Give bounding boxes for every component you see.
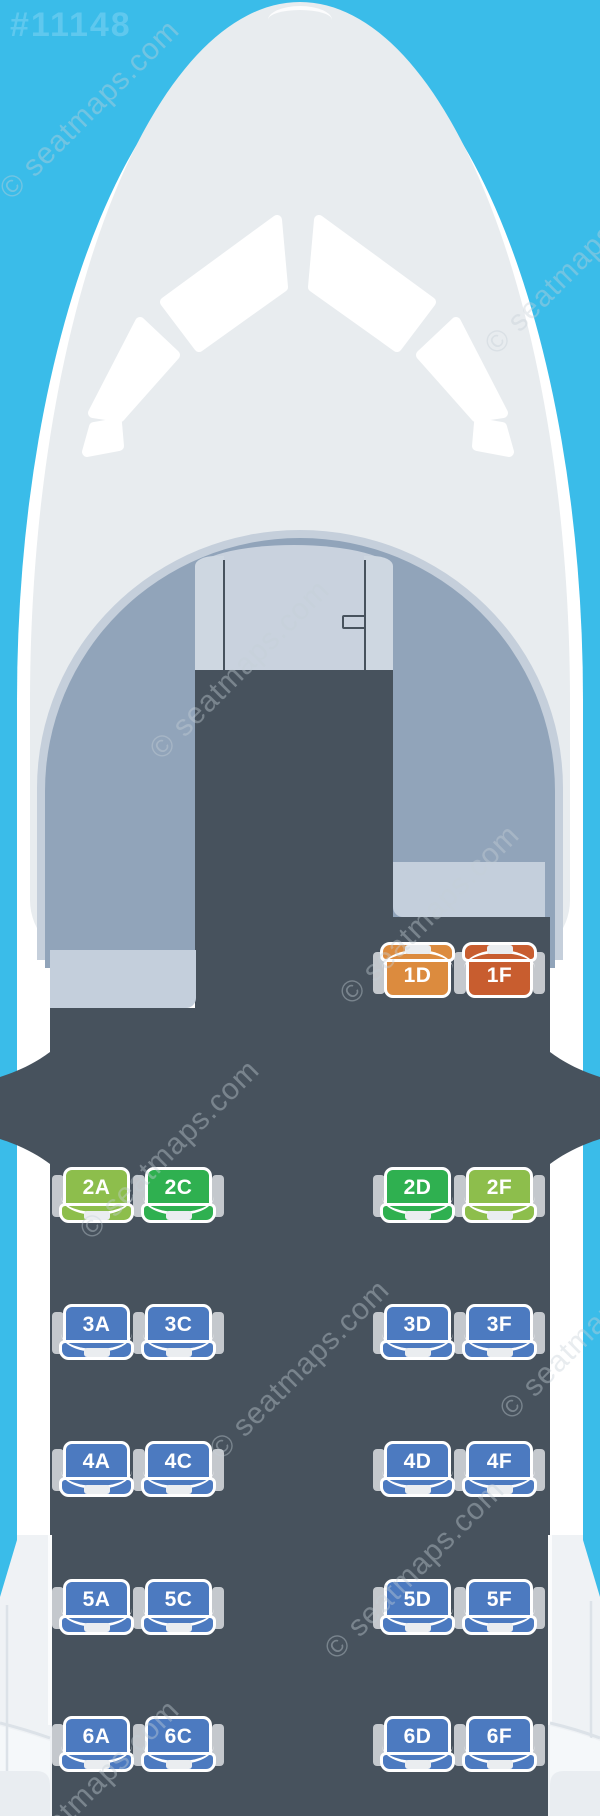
seat-headrest-tab	[405, 1348, 431, 1357]
seat-2D[interactable]: 2D	[384, 1167, 451, 1221]
seat-headrest-tab	[487, 945, 513, 954]
wing-root-left	[0, 1535, 60, 1816]
seat-headrest-tab	[84, 1760, 110, 1769]
nose-highlight	[268, 6, 332, 34]
seat-label: 4C	[148, 1450, 209, 1474]
seat-label: 5D	[387, 1588, 448, 1612]
seat-label: 3F	[469, 1313, 530, 1337]
seat-5A[interactable]: 5A	[63, 1579, 130, 1633]
seat-label: 5C	[148, 1588, 209, 1612]
seat-headrest-tab	[405, 945, 431, 954]
seat-label: 3C	[148, 1313, 209, 1337]
wing-root-right	[510, 1535, 600, 1816]
seat-headrest-tab	[487, 1211, 513, 1220]
seat-label: 2D	[387, 1176, 448, 1200]
seat-6D[interactable]: 6D	[384, 1716, 451, 1770]
seat-2F[interactable]: 2F	[466, 1167, 533, 1221]
seat-headrest-tab	[405, 1760, 431, 1769]
seat-label: 3A	[66, 1313, 127, 1337]
seat-headrest-tab	[487, 1623, 513, 1632]
seat-5F[interactable]: 5F	[466, 1579, 533, 1633]
seat-label: 1F	[469, 964, 530, 988]
seat-label: 2C	[148, 1176, 209, 1200]
seat-headrest-tab	[84, 1211, 110, 1220]
seat-headrest-tab	[84, 1623, 110, 1632]
cockpit-panel-left-column	[195, 556, 224, 670]
seat-headrest-tab	[487, 1348, 513, 1357]
seat-label: 6D	[387, 1725, 448, 1749]
front-aisle-floor	[195, 670, 393, 1015]
seat-headrest-tab	[166, 1760, 192, 1769]
seat-3F[interactable]: 3F	[466, 1304, 533, 1358]
seat-headrest-tab	[166, 1485, 192, 1494]
seat-headrest-tab	[487, 1485, 513, 1494]
seat-label: 6C	[148, 1725, 209, 1749]
cockpit-door-handle-icon	[342, 615, 366, 629]
seat-headrest-tab	[166, 1348, 192, 1357]
seat-headrest-tab	[487, 1760, 513, 1769]
seat-map-canvas: #11148 1D1F2A2C2D2F3A3C3D3F4A4C4D4F5A5C5…	[0, 0, 600, 1816]
seat-headrest-tab	[166, 1623, 192, 1632]
seat-6C[interactable]: 6C	[145, 1716, 212, 1770]
cockpit-panel-right-column	[364, 556, 393, 670]
cockpit-door-line-left	[223, 560, 225, 670]
seat-3D[interactable]: 3D	[384, 1304, 451, 1358]
seat-headrest-tab	[405, 1211, 431, 1220]
cockpit-windows-icon	[0, 170, 600, 470]
seat-5D[interactable]: 5D	[384, 1579, 451, 1633]
seat-headrest-tab	[405, 1485, 431, 1494]
seat-3C[interactable]: 3C	[145, 1304, 212, 1358]
seat-4C[interactable]: 4C	[145, 1441, 212, 1495]
seat-4A[interactable]: 4A	[63, 1441, 130, 1495]
seat-2A[interactable]: 2A	[63, 1167, 130, 1221]
seat-headrest-tab	[166, 1211, 192, 1220]
seat-6A[interactable]: 6A	[63, 1716, 130, 1770]
seat-4F[interactable]: 4F	[466, 1441, 533, 1495]
seat-2C[interactable]: 2C	[145, 1167, 212, 1221]
seat-label: 4D	[387, 1450, 448, 1474]
seat-6F[interactable]: 6F	[466, 1716, 533, 1770]
seat-label: 2F	[469, 1176, 530, 1200]
seat-label: 5F	[469, 1588, 530, 1612]
seat-1F[interactable]: 1F	[466, 944, 533, 998]
seat-headrest-tab	[405, 1623, 431, 1632]
seat-5C[interactable]: 5C	[145, 1579, 212, 1633]
seat-label: 4A	[66, 1450, 127, 1474]
entry-door-counter-left	[50, 950, 196, 1008]
seat-headrest-tab	[84, 1485, 110, 1494]
seat-headrest-tab	[84, 1348, 110, 1357]
seat-label: 3D	[387, 1313, 448, 1337]
seat-label: 2A	[66, 1176, 127, 1200]
seat-label: 6F	[469, 1725, 530, 1749]
galley-counter-right	[393, 862, 545, 917]
seat-label: 4F	[469, 1450, 530, 1474]
seat-label: 6A	[66, 1725, 127, 1749]
seat-label: 5A	[66, 1588, 127, 1612]
seat-3A[interactable]: 3A	[63, 1304, 130, 1358]
map-id-label: #11148	[10, 6, 132, 45]
seat-1D[interactable]: 1D	[384, 944, 451, 998]
seat-label: 1D	[387, 964, 448, 988]
seat-4D[interactable]: 4D	[384, 1441, 451, 1495]
